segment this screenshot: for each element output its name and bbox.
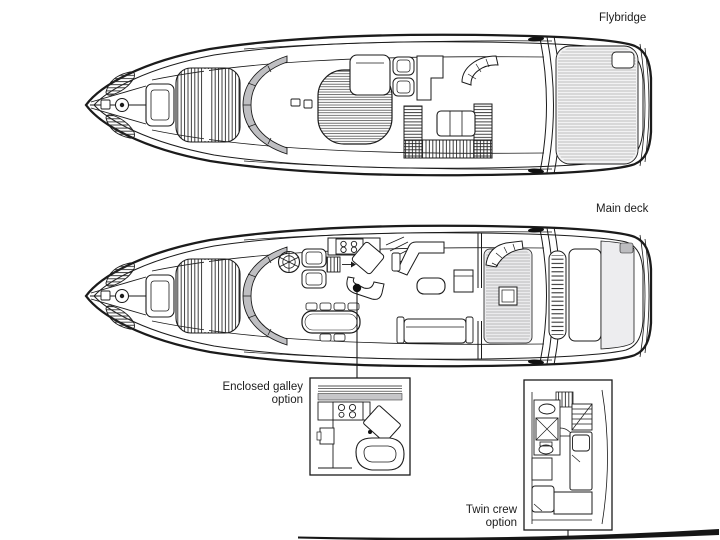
twin-crew-label: Twin crew option xyxy=(466,504,518,529)
galley-oven xyxy=(320,428,334,444)
galley-gray-band xyxy=(318,394,402,401)
aft-deck-hatch xyxy=(612,52,634,68)
coffee-table xyxy=(417,278,445,294)
crew-head-unit xyxy=(534,400,560,455)
main-deck-label: Main deck xyxy=(596,203,649,215)
deck-hatch xyxy=(304,100,312,108)
galley-oven-handle xyxy=(317,432,321,440)
crew-stairs-icon xyxy=(572,404,592,430)
flybridge-deck-plan xyxy=(86,35,651,175)
galley-sink xyxy=(327,257,340,272)
twin-crew-inset xyxy=(524,380,612,530)
helm-wheel-icon xyxy=(279,252,300,273)
saloon-corner-sofa xyxy=(397,242,444,275)
settee-aft xyxy=(404,140,492,158)
aft-platform xyxy=(601,241,634,349)
sofa-armrest-left xyxy=(397,317,404,343)
main-deck-plan xyxy=(86,226,651,366)
pilot-seat-1-cushion xyxy=(306,252,322,264)
companion-bench xyxy=(350,55,390,95)
galley-callout-marker xyxy=(353,284,361,292)
crew-berth-2-pillow xyxy=(532,486,554,512)
twin-crew-label-line1: Twin crew xyxy=(466,504,518,516)
enclosed-galley-label: Enclosed galley option xyxy=(222,381,303,406)
sofa-armrest-right xyxy=(466,317,473,343)
saloon-aft-bulkhead xyxy=(478,233,482,359)
galley-banquette-inner xyxy=(364,446,396,462)
tender-garage-hatch xyxy=(569,249,601,341)
pilot-seat-2-cushion xyxy=(306,273,322,285)
lower-deck-edge xyxy=(298,529,719,540)
enclosed-galley-label-line2: option xyxy=(272,394,303,406)
helm-console xyxy=(417,56,443,100)
galley-stove-icon xyxy=(333,402,363,420)
crew-berth-2 xyxy=(554,492,592,514)
transom-ladder-rungs xyxy=(552,255,564,335)
deck-fitting xyxy=(291,99,300,106)
flybridge-label: Flybridge xyxy=(599,12,646,24)
crew-locker xyxy=(532,458,552,480)
enclosed-galley-label-line1: Enclosed galley xyxy=(222,381,303,393)
deck-plan-diagram: Flybridge Main deck Enclosed galley opti… xyxy=(0,0,720,540)
saloon-side-unit xyxy=(392,253,400,271)
yacht-deck-plan-page: Flybridge Main deck Enclosed galley opti… xyxy=(0,0,720,540)
tv-cabinet xyxy=(454,270,473,292)
twin-crew-label-line2: option xyxy=(486,517,517,529)
platform-locker xyxy=(620,243,633,253)
saloon-sofa xyxy=(404,319,466,343)
helm-seat-1-cushion xyxy=(397,60,410,72)
enclosed-galley-inset xyxy=(310,378,410,475)
flybridge-table xyxy=(437,111,475,136)
galley-unit-dot xyxy=(368,430,372,434)
helm-seat-2-cushion xyxy=(397,81,410,93)
lower-helm-bench xyxy=(347,277,384,299)
crew-berth-1-pillow xyxy=(573,435,590,451)
